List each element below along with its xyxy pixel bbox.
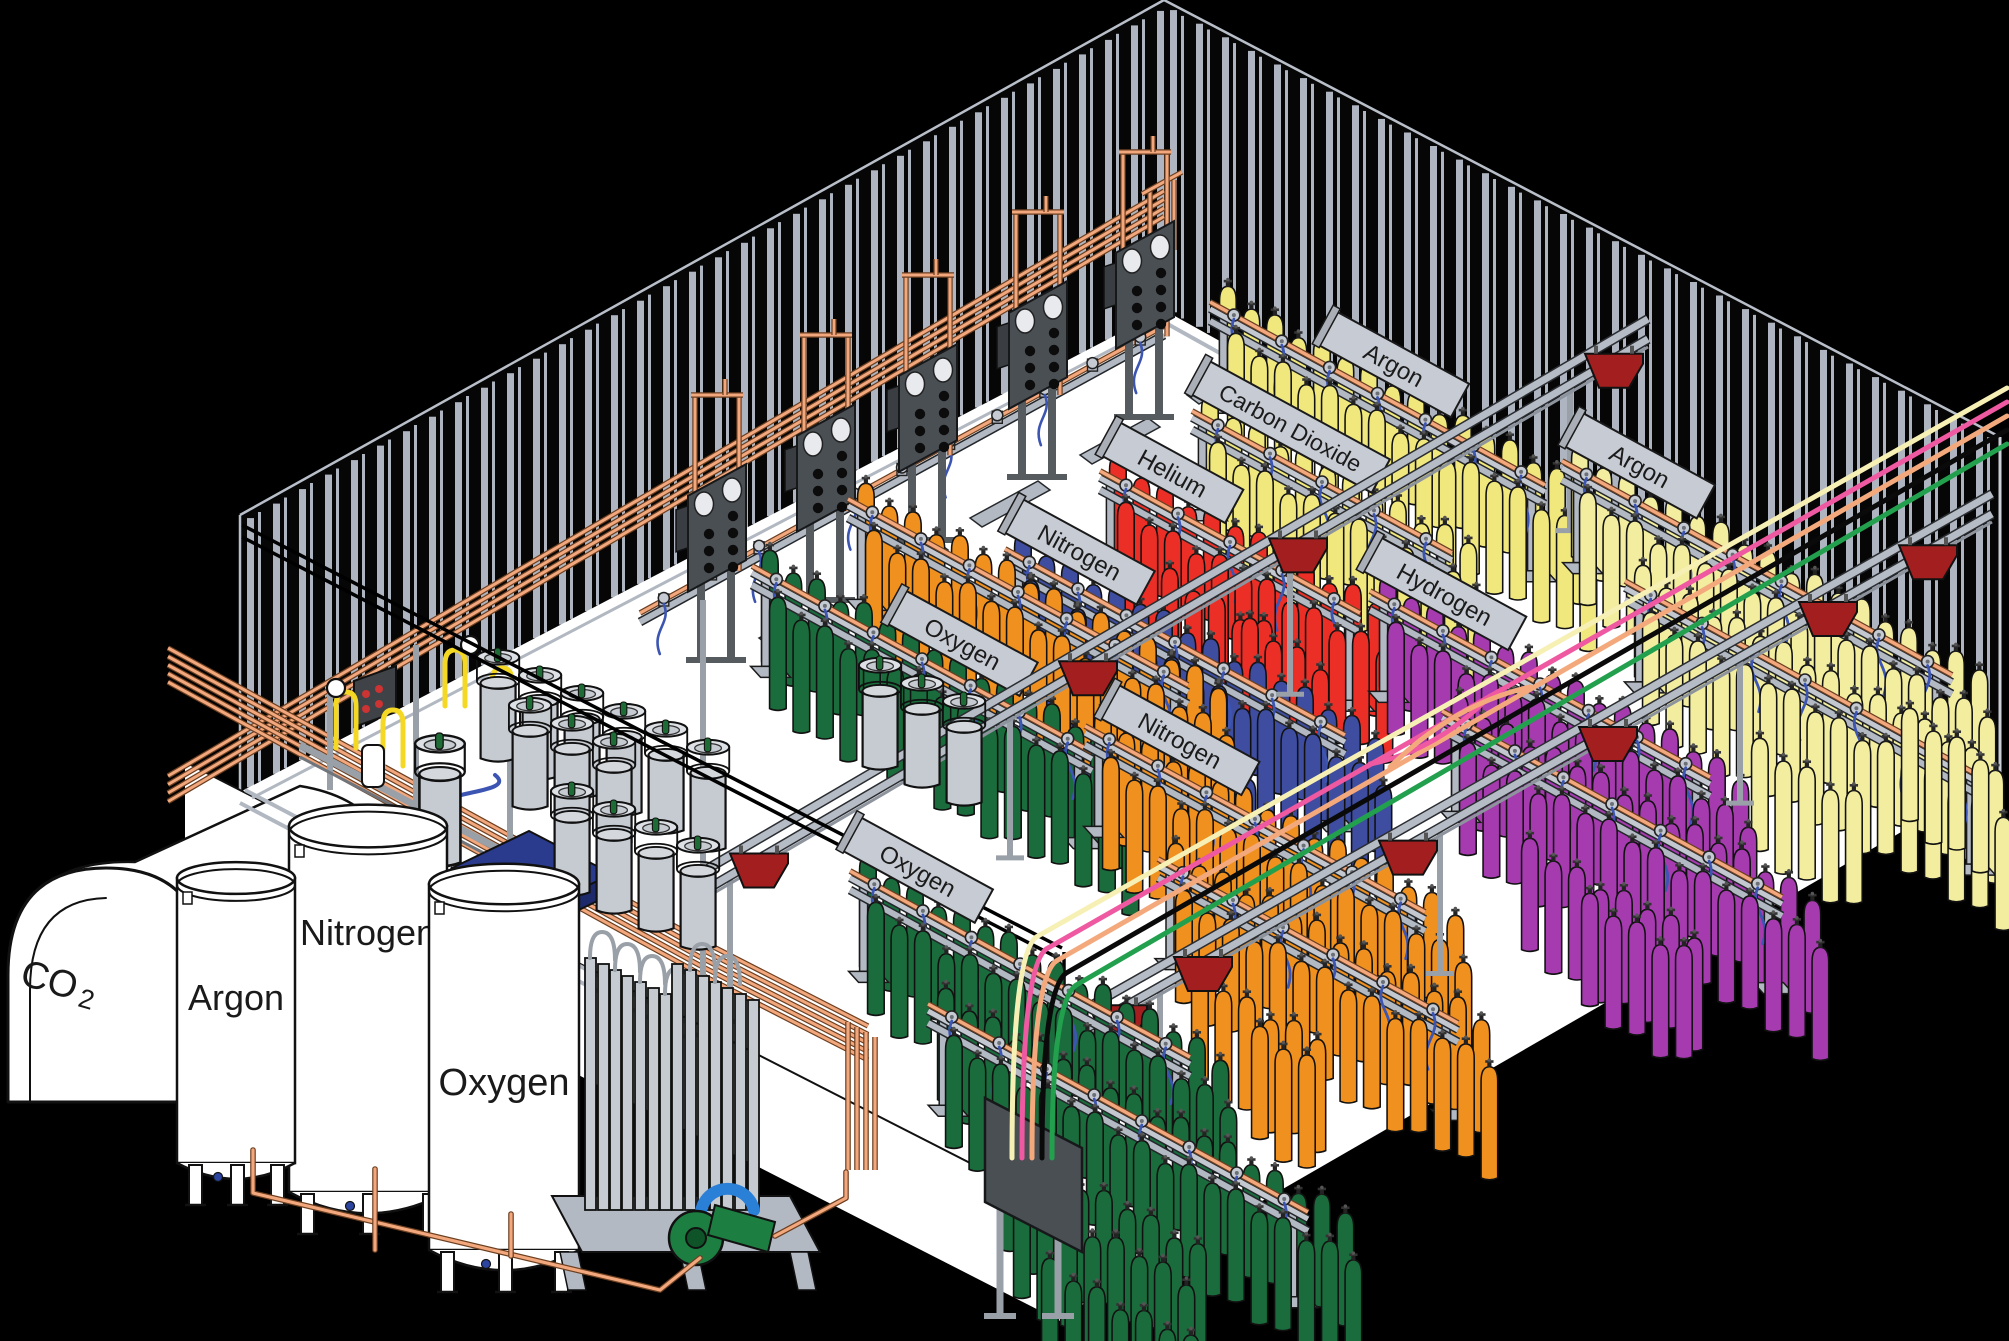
svg-text:Oxygen: Oxygen — [439, 1062, 570, 1104]
svg-text:Nitrogen: Nitrogen — [300, 912, 436, 953]
svg-text:Argon: Argon — [188, 977, 284, 1018]
